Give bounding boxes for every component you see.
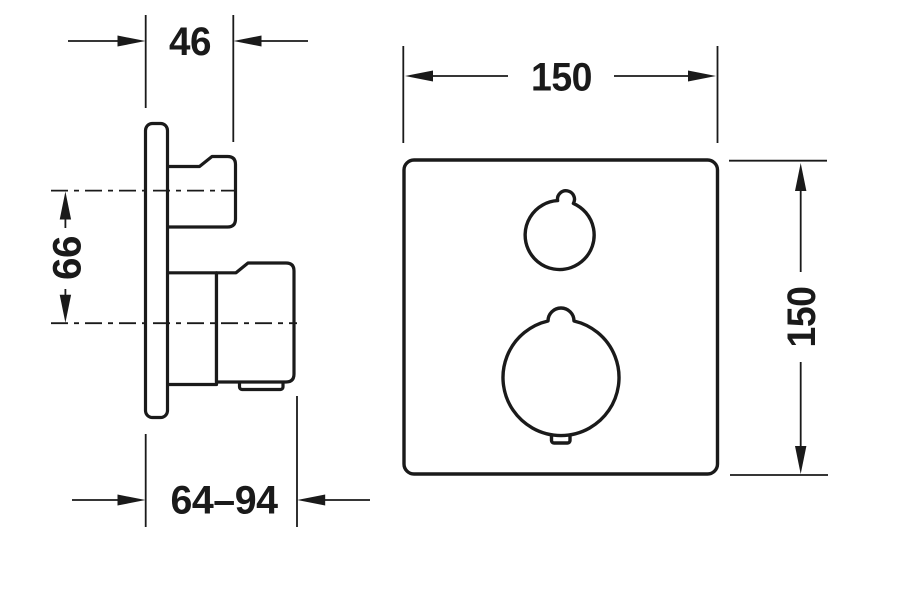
dim-arrow-left-icon	[234, 36, 262, 47]
dim-arrow-right-icon	[118, 495, 146, 506]
dim-plate-width-150: 150	[403, 46, 717, 143]
dim-arrow-up-icon	[60, 192, 71, 220]
dim-label-150-width: 150	[531, 56, 592, 100]
technical-drawing-canvas: 46 66 64–94 150 150	[0, 0, 905, 589]
dim-arrow-left-icon	[405, 71, 433, 82]
dim-arrow-up-icon	[795, 163, 806, 191]
dim-plate-depth-46: 46	[68, 15, 308, 142]
dim-install-depth-64-94: 64–94	[72, 396, 370, 527]
dim-arrow-right-icon	[118, 36, 146, 47]
dim-arrow-down-icon	[60, 295, 71, 323]
dim-label-66: 66	[46, 236, 90, 280]
dim-arrow-left-icon	[297, 495, 325, 506]
top-handle-side	[167, 157, 236, 228]
escutcheon-sleeve-side	[167, 273, 217, 385]
dim-plate-height-150: 150	[729, 161, 828, 475]
dim-label-46: 46	[169, 20, 211, 64]
dim-arrow-down-icon	[795, 446, 806, 474]
dim-handle-spacing-66: 66	[46, 192, 90, 323]
front-view	[404, 160, 718, 474]
dim-arrow-right-icon	[688, 71, 716, 82]
mixer-dimension-drawing: 46 66 64–94 150 150	[0, 0, 905, 589]
dim-label-150-height: 150	[780, 287, 824, 348]
dim-label-64-94: 64–94	[171, 479, 279, 523]
wall-plate-side	[146, 124, 168, 418]
